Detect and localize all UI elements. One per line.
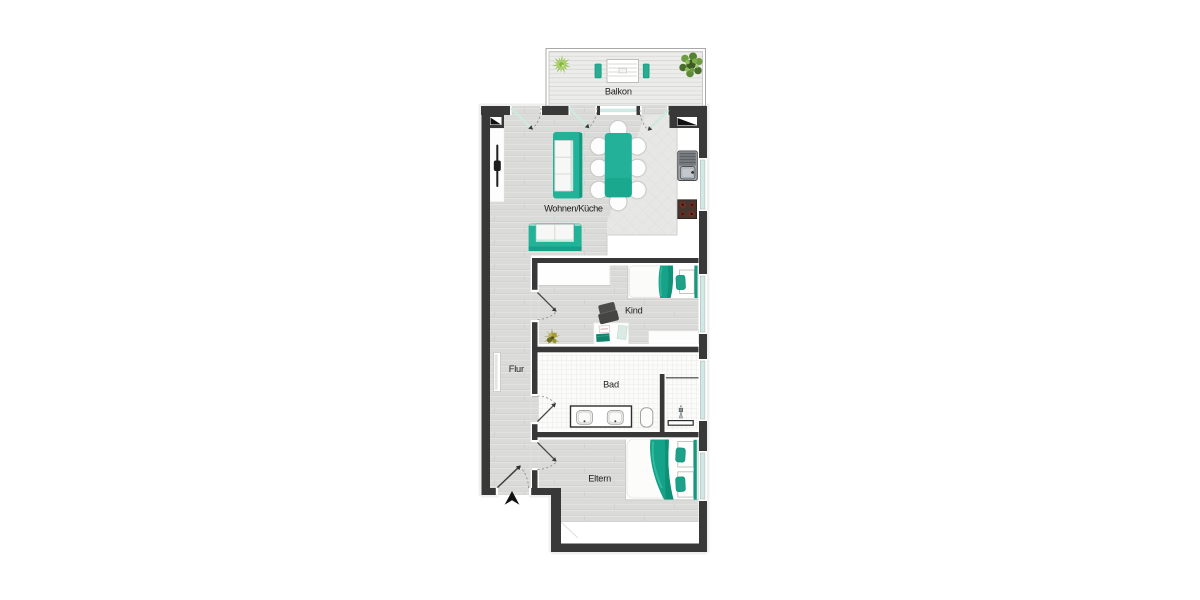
svg-text:Wohnen/Küche: Wohnen/Küche [544, 204, 603, 214]
svg-text:Bad: Bad [603, 380, 619, 390]
svg-text:Eltern: Eltern [588, 474, 611, 484]
svg-text:Flur: Flur [509, 364, 524, 374]
svg-text:Balkon: Balkon [605, 87, 632, 97]
svg-text:Kind: Kind [625, 306, 643, 316]
